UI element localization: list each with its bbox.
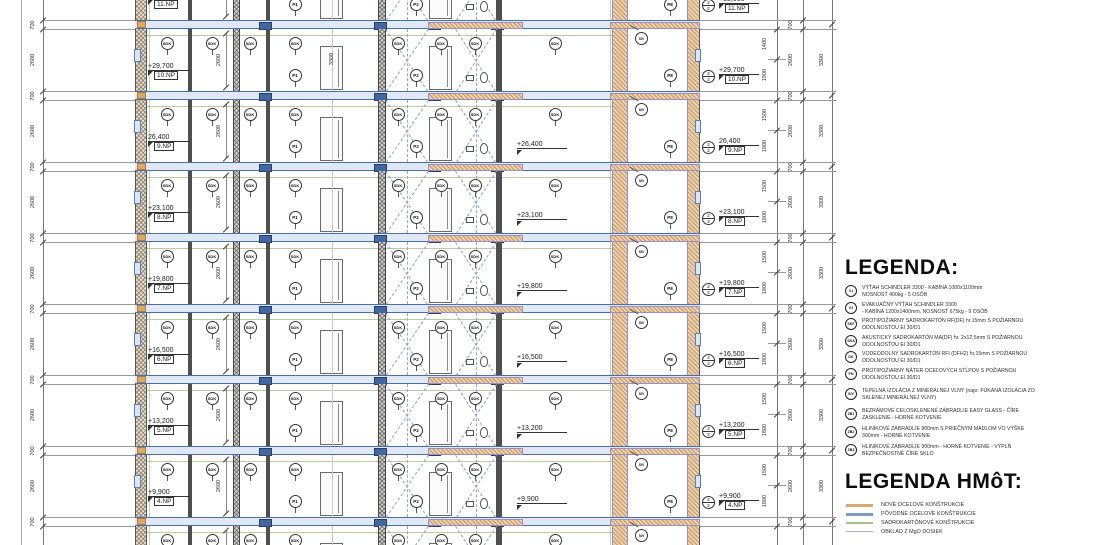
tag-stem <box>441 263 442 268</box>
steel-column <box>378 384 386 446</box>
interior-dim-line <box>226 246 227 300</box>
tag-stem <box>416 508 417 513</box>
facade-window <box>695 49 701 62</box>
legend-text-line1: AKUSTICKÝ SADROKARTÓN MA(DF) hr. 2x12,5m… <box>862 335 1094 342</box>
datum-bottom: 2 <box>703 290 714 295</box>
level-value: +23,100 <box>719 209 759 217</box>
dim-label-slab: 700 <box>29 436 37 466</box>
level-label-right: +16,5006.NP <box>719 351 763 368</box>
elevator-travel-line <box>407 384 408 446</box>
tag-stem <box>670 153 671 158</box>
datum-bottom: 2 <box>703 432 714 437</box>
room-tag-sdk: SDK <box>206 321 219 334</box>
room-tag-sdk: SDK <box>392 321 405 334</box>
tag-stem <box>475 50 476 55</box>
dim-label-clear: 2600 <box>787 187 795 217</box>
level-label-right: +19,8007.NP <box>719 280 763 297</box>
tag-stem <box>555 192 556 197</box>
tag-stem <box>398 476 399 481</box>
floor-number: 11.NP <box>725 4 749 13</box>
level-value: +16,500 <box>719 351 759 359</box>
steel-column <box>378 29 386 91</box>
room-tag-sdk: SDK <box>289 250 302 263</box>
room-tag-sdk: SDK <box>469 250 482 263</box>
partition-wall <box>266 100 270 162</box>
floor-number: 4.NP <box>154 497 174 506</box>
ext-line-left <box>43 517 135 518</box>
tag-stem <box>398 334 399 339</box>
legend-item: V2EVAKUAČNÝ VÝŤAH SCHINDLER 3300- KABÍNA… <box>845 302 1095 316</box>
legend-text-line2: - KABÍNA 1200x1400mm, NOSNOSŤ 675kg - 9 … <box>862 309 1094 316</box>
tag-stem <box>167 50 168 55</box>
tag-stem <box>398 263 399 268</box>
interior-dim-line <box>226 317 227 371</box>
steel-column <box>378 313 386 375</box>
room-tag-p2: P2 <box>410 69 423 82</box>
level-datum-icon: 22 <box>702 425 715 438</box>
grid-line <box>332 171 333 233</box>
door-leaf-line <box>447 333 448 371</box>
steel-column <box>233 384 240 446</box>
dim-label-a: 1500 <box>761 455 769 485</box>
tag-stem <box>212 405 213 410</box>
material-label: NOVÉ OCEĽOVÉ KONŠTRUKCIE <box>881 502 964 508</box>
tag-stem <box>555 263 556 268</box>
level-value: +29,700 <box>148 63 190 71</box>
dim-label-floor-total: 3300 <box>818 258 826 288</box>
tag-stem <box>212 334 213 339</box>
tag-stem <box>475 405 476 410</box>
outer-dim-line <box>21 0 22 545</box>
wc-fixture <box>466 4 474 10</box>
floor-number: 8.NP <box>154 213 174 222</box>
wc-fixture <box>466 430 474 436</box>
room-tag-sdk: SDK <box>392 463 405 476</box>
room-tag-sdk: SDK <box>289 463 302 476</box>
wc-fixture <box>480 285 488 296</box>
room-tag-sdk: SDK <box>161 321 174 334</box>
room-tag-sdk: SDK <box>549 392 562 405</box>
level-arrow-icon <box>517 292 522 297</box>
tag-stem <box>295 192 296 197</box>
level-np-row: 4.NP <box>148 497 190 506</box>
facade-window <box>134 120 141 133</box>
storey-band: 2600SDKSDKSDKSDKSDKSDKSDKSDKSIVP1P2P8+19… <box>135 242 700 304</box>
room-tag-sdk: SDK <box>435 392 448 405</box>
tag-stem <box>398 405 399 410</box>
level-label-right: 26,4009.NP <box>719 138 763 155</box>
tag-stem <box>295 121 296 126</box>
tag-stem <box>212 50 213 55</box>
dim-label-floor-total: 3300 <box>818 400 826 430</box>
tag-stem <box>416 437 417 442</box>
room-tag-sdk: SDK <box>206 463 219 476</box>
level-label-mid: +23,100 <box>517 212 569 220</box>
dim-label-floor-total: 3300 <box>818 471 826 501</box>
floor-number: 4.NP <box>725 501 745 510</box>
new-steel-slab-zone <box>428 448 523 455</box>
ext-line-right <box>700 233 836 234</box>
floor-number: 9.NP <box>725 146 745 155</box>
tag-stem <box>167 263 168 268</box>
legend-item: SKAAKUSTICKÝ SADROKARTÓN MA(DF) hr. 2x12… <box>845 335 1095 349</box>
tag-stem <box>475 121 476 126</box>
new-steel-slab-zone <box>610 22 700 29</box>
legend-badge: ZB2 <box>845 426 857 438</box>
room-tag-p8: P8 <box>664 282 677 295</box>
elevator-travel-line <box>407 455 408 517</box>
tag-stem <box>295 476 296 481</box>
room-tag-sdk: SDK <box>469 392 482 405</box>
ext-line-left <box>43 313 135 314</box>
dim-label-room: 2600 <box>215 400 223 430</box>
wc-fixture <box>466 217 474 223</box>
interior-dim-line <box>226 175 227 229</box>
wc-fixture <box>466 501 474 507</box>
dim-label-slab: 700 <box>29 294 37 324</box>
grid-line <box>332 0 333 20</box>
elevator-travel-line <box>407 526 408 545</box>
material-swatch-line <box>846 531 873 532</box>
dim-label-slab: 700 <box>787 10 795 40</box>
legend-text-line2: ODOLNOSŤOU EI 30/D1 <box>862 325 1094 332</box>
partition-wall <box>188 384 192 446</box>
level-arrow-icon <box>148 71 153 76</box>
legend-badge: ZB1 <box>845 408 857 420</box>
grid-line <box>332 384 333 446</box>
dim-label-b: 1800 <box>761 131 769 161</box>
ext-line-left <box>43 304 135 305</box>
tag-stem <box>167 121 168 126</box>
dim-label-room: 2600 <box>215 329 223 359</box>
insulation-tag-siv: SIV <box>635 103 648 116</box>
level-label-right: +13,2005.NP <box>719 422 763 439</box>
tag-stem <box>416 295 417 300</box>
ext-line-left <box>43 242 135 243</box>
dim-label-a: 1500 <box>761 100 769 130</box>
dim-label-slab: 700 <box>29 10 37 40</box>
door-leaf-line <box>338 49 339 87</box>
new-steel-wall <box>612 455 628 517</box>
level-datum-icon: 22 <box>702 283 715 296</box>
room-tag-p8: P8 <box>664 69 677 82</box>
wc-fixture <box>466 75 474 81</box>
floor-slab <box>135 446 700 455</box>
door-leaf-line <box>338 0 339 16</box>
legend-item: ZB2HLINÍKOVÉ ZÁBRADLIE 900mm S PRIEČNYM … <box>845 426 1095 440</box>
facade-window <box>695 333 701 346</box>
level-arrow-icon <box>719 4 724 9</box>
partition-wall <box>188 100 192 162</box>
room-tag-sdk: SDK <box>549 534 562 545</box>
room-tag-sdk: SDK <box>244 37 257 50</box>
legend-text-line1: PROTIPOŽIARNY SADROKARTÓN RF(DF) hr.15mm… <box>862 318 1094 325</box>
partition-wall <box>188 29 192 91</box>
room-tag-sdk: SDK <box>244 534 257 545</box>
tag-stem <box>250 121 251 126</box>
facade-window <box>134 49 141 62</box>
interior-dim-line <box>226 104 227 158</box>
legend-text-line2: ODOLNOSŤOU EI 30/D1 <box>862 358 1094 365</box>
level-np-row: 5.NP <box>719 430 763 439</box>
partition-wall <box>496 313 502 375</box>
level-arrow-icon <box>517 363 522 368</box>
level-value: +29,700 <box>719 67 759 75</box>
level-arrow-icon <box>719 501 724 506</box>
dim-label-slab: 700 <box>29 81 37 111</box>
room-tag-p1: P1 <box>289 424 302 437</box>
datum-bottom: 2 <box>703 219 714 224</box>
level-value: +16,500 <box>148 347 190 355</box>
insulation-tag-siv: SIV <box>635 316 648 329</box>
door-leaf-line <box>338 475 339 513</box>
wall-slab-anchor <box>137 163 146 170</box>
room-tag-p2: P2 <box>410 0 423 11</box>
room-tag-p1: P1 <box>289 0 302 11</box>
new-steel-wall <box>612 29 628 91</box>
door-leaf-line <box>447 49 448 87</box>
tag-stem <box>250 50 251 55</box>
tag-stem <box>295 82 296 87</box>
level-value: +19,800 <box>719 280 759 288</box>
elevator-travel-line <box>407 0 408 20</box>
room-tag-p1: P1 <box>289 69 302 82</box>
steel-column <box>378 526 386 545</box>
legend-text-line1: VODEODOLNÝ SADROKARTÓN RFI (DFH2) hr.15m… <box>862 351 1094 358</box>
tag-stem <box>212 476 213 481</box>
floor-number: 10.NP <box>725 75 749 84</box>
dim-label-clear: 2600 <box>29 400 37 430</box>
legend-text: EVAKUAČNÝ VÝŤAH SCHINDLER 3300- KABÍNA 1… <box>862 302 1094 315</box>
tag-stem <box>295 508 296 513</box>
dim-label-clear: 2600 <box>29 471 37 501</box>
room-tag-p8: P8 <box>664 495 677 508</box>
dim-label-a: 1500 <box>761 313 769 343</box>
new-steel-slab-zone <box>610 377 700 384</box>
tag-stem <box>670 437 671 442</box>
grid-line <box>332 526 333 545</box>
legend-badge: PN <box>845 368 857 380</box>
partition-wall <box>266 313 270 375</box>
partition-wall <box>266 526 270 545</box>
level-label-mid: +13,200 <box>517 425 569 433</box>
tag-stem <box>555 476 556 481</box>
room-tag-sdk: SDK <box>469 463 482 476</box>
room-tag-sdk: SDK <box>435 534 448 545</box>
partition-wall <box>266 171 270 233</box>
dim-label-slab: 700 <box>787 152 795 182</box>
dim-label-clear: 2600 <box>787 471 795 501</box>
elevator-travel-line <box>407 313 408 375</box>
room-tag-sdk: SDK <box>392 179 405 192</box>
level-arrow-icon <box>148 0 153 5</box>
new-steel-slab-zone <box>428 93 523 100</box>
storey-band: 2600SDKSDKSDKSDKSDKSDKSDKSDKSIVP1P2P8+33… <box>135 0 700 20</box>
level-value: +26,400 <box>517 141 567 149</box>
floor-number: 6.NP <box>154 355 174 364</box>
dim-label-room: 2600 <box>215 45 223 75</box>
room-tag-sdk: SDK <box>435 250 448 263</box>
grid-line <box>332 100 333 162</box>
dim-label-floor-total: 3300 <box>328 44 336 74</box>
tag-stem <box>670 366 671 371</box>
level-np-row: 10.NP <box>148 71 190 80</box>
room-tag-p8: P8 <box>664 140 677 153</box>
insulation-tag-siv: SIV <box>635 245 648 258</box>
partition-wall <box>496 0 502 20</box>
dim-label-a: 1500 <box>761 242 769 272</box>
room-tag-sdk: SDK <box>161 179 174 192</box>
legend-badge: V1 <box>845 285 857 297</box>
level-value: +9,900 <box>517 496 567 504</box>
level-np-row: 10.NP <box>719 75 763 84</box>
legend-badge: SIV <box>845 388 857 400</box>
level-arrow-icon <box>148 426 153 431</box>
room-tag-sdk: SDK <box>161 392 174 405</box>
tag-stem <box>250 405 251 410</box>
legend-text-line1: PROTIPOŽIARNY NÁTER OCEĽOVÝCH STĹPOV S P… <box>862 368 1094 375</box>
dim-label-clear: 2600 <box>787 45 795 75</box>
steel-column <box>378 100 386 162</box>
facade-window <box>695 191 701 204</box>
steel-column <box>233 242 240 304</box>
new-steel-slab-zone <box>428 22 523 29</box>
facade-window <box>134 333 141 346</box>
facade-window <box>695 475 701 488</box>
room-tag-sdk: SDK <box>469 37 482 50</box>
ext-line-left <box>43 91 135 92</box>
level-np-row: 8.NP <box>148 213 190 222</box>
room-tag-sdk: SDK <box>244 250 257 263</box>
level-arrow-icon <box>719 288 724 293</box>
wc-fixture <box>480 143 488 154</box>
dim-label-room: 2600 <box>215 116 223 146</box>
legend-text-line2: BEZPEČNOSTNÉ ČÍRE SKLO <box>862 451 1094 458</box>
facade-window <box>695 262 701 275</box>
level-arrow-icon <box>719 75 724 80</box>
wc-fixture <box>480 214 488 225</box>
dim-label-a: 1500 <box>761 171 769 201</box>
level-np-row: 8.NP <box>719 217 763 226</box>
ext-line-left <box>43 384 135 385</box>
room-tag-sdk: SDK <box>549 250 562 263</box>
elevator-travel-line <box>407 100 408 162</box>
tag-stem <box>212 263 213 268</box>
level-value: +23,100 <box>517 212 567 220</box>
level-np-row: 5.NP <box>148 426 190 435</box>
steel-column <box>233 29 240 91</box>
elevator-travel-line <box>407 29 408 91</box>
dim-label-slab: 700 <box>29 223 37 253</box>
floor-number: 11.NP <box>154 0 178 9</box>
tag-stem <box>295 224 296 229</box>
level-label-left: +13,2005.NP <box>148 418 190 435</box>
partition-wall <box>496 171 502 233</box>
tag-stem <box>670 82 671 87</box>
room-tag-p8: P8 <box>664 0 677 11</box>
level-datum-icon: 22 <box>702 70 715 83</box>
wc-fixture <box>480 72 488 83</box>
tag-stem <box>167 405 168 410</box>
level-value: +19,800 <box>517 283 567 291</box>
tag-stem <box>441 476 442 481</box>
legend-text-line1: BEZRÁMOVÉ CELOSKLENENÉ ZÁBRADLIE EASY GL… <box>862 408 1094 415</box>
partition-wall <box>496 100 502 162</box>
dim-label-floor-total: 3300 <box>818 116 826 146</box>
tag-stem <box>475 476 476 481</box>
room-tag-sdk: SDK <box>206 534 219 545</box>
legend-text-line2: ODOLNOSŤOU EI 30/D1 <box>862 375 1094 382</box>
left-dim-chain <box>43 0 44 545</box>
dim-label-clear: 2600 <box>29 187 37 217</box>
storey-band: 2600SDKSDKSDKSDKSDKSDKSDKSDKSIVP1P2P8+23… <box>135 171 700 233</box>
tag-stem <box>441 405 442 410</box>
ext-line-right <box>700 526 836 527</box>
ext-line-right <box>700 517 836 518</box>
level-label-right: +23,1008.NP <box>719 209 763 226</box>
dim-label-clear: 2600 <box>29 258 37 288</box>
dim-label-clear: 2600 <box>29 45 37 75</box>
floor-slab <box>135 91 700 100</box>
new-steel-slab-zone <box>428 235 523 242</box>
tag-stem <box>555 334 556 339</box>
room-tag-sdk: SDK <box>244 392 257 405</box>
room-tag-p2: P2 <box>410 211 423 224</box>
floor-slab <box>135 20 700 29</box>
new-steel-slab-zone <box>610 93 700 100</box>
floor-slab <box>135 517 700 526</box>
floor-number: 10.NP <box>154 71 178 80</box>
dim-label-slab: 700 <box>29 507 37 537</box>
legend-text: HLINÍKOVÉ ZÁBRADLIE 900mm - HORNÉ KOTVEN… <box>862 444 1094 457</box>
partition-wall <box>266 384 270 446</box>
room-tag-sdk: SDK <box>549 321 562 334</box>
tag-stem <box>416 224 417 229</box>
door-leaf-line <box>338 404 339 442</box>
level-label-left: +33,00011.NP <box>148 0 190 9</box>
partition-wall <box>266 29 270 91</box>
tag-stem <box>398 50 399 55</box>
legend-item: PNPROTIPOŽIARNY NÁTER OCEĽOVÝCH STĹPOV S… <box>845 368 1095 382</box>
floor-number: 8.NP <box>725 217 745 226</box>
door-leaf-line <box>447 120 448 158</box>
legend-text: TEPELNÁ IZOLÁCIA Z MINERÁLNEJ VLNY (napr… <box>862 388 1094 401</box>
steel-column <box>233 526 240 545</box>
level-np-row: 6.NP <box>148 355 190 364</box>
legend-badge: DK <box>845 351 857 363</box>
level-arrow-icon <box>517 434 522 439</box>
room-tag-sdk: SDK <box>392 534 405 545</box>
room-tag-sdk: SDK <box>244 321 257 334</box>
datum-bottom: 2 <box>703 148 714 153</box>
legend-text-line1: VÝŤAH SCHINDLER 3300 - KABÍNA 1000x1100m… <box>862 285 1094 292</box>
facade-window <box>134 475 141 488</box>
level-label-right: +33,00011.NP <box>719 0 763 13</box>
level-label-left: 26,4009.NP <box>148 134 190 151</box>
tag-stem <box>441 50 442 55</box>
dim-label-b: 1800 <box>761 486 769 516</box>
room-tag-sdk: SDK <box>161 463 174 476</box>
steel-column <box>378 242 386 304</box>
level-label-mid: +9,900 <box>517 496 569 504</box>
ext-line-left <box>43 100 135 101</box>
datum-bottom: 2 <box>703 503 714 508</box>
new-steel-wall <box>612 526 628 545</box>
dim-label-floor-total: 3300 <box>818 187 826 217</box>
door-leaf-line <box>447 191 448 229</box>
floor-number: 9.NP <box>154 142 174 151</box>
insulation-tag-siv: SIV <box>635 32 648 45</box>
